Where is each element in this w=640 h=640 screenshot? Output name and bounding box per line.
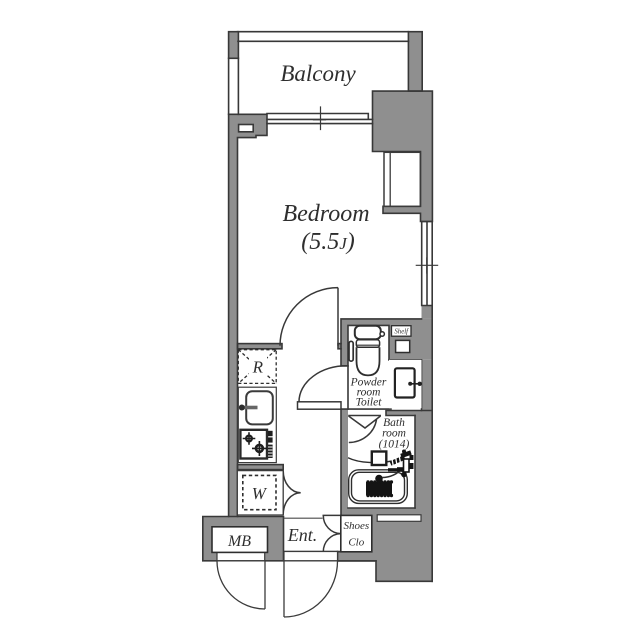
svg-text:Balcony: Balcony: [280, 61, 356, 86]
svg-text:Shoes: Shoes: [343, 520, 369, 532]
svg-text:(5.5J): (5.5J): [301, 229, 355, 255]
svg-text:Ent.: Ent.: [287, 525, 318, 545]
svg-text:Bedroom: Bedroom: [282, 201, 369, 227]
svg-text:Toilet: Toilet: [356, 397, 383, 409]
svg-text:Clo: Clo: [348, 537, 364, 549]
svg-text:(1014): (1014): [379, 439, 410, 451]
svg-text:MB: MB: [227, 533, 251, 550]
svg-text:R: R: [252, 358, 264, 377]
svg-text:W: W: [252, 484, 268, 503]
svg-text:Shelf: Shelf: [394, 329, 409, 336]
